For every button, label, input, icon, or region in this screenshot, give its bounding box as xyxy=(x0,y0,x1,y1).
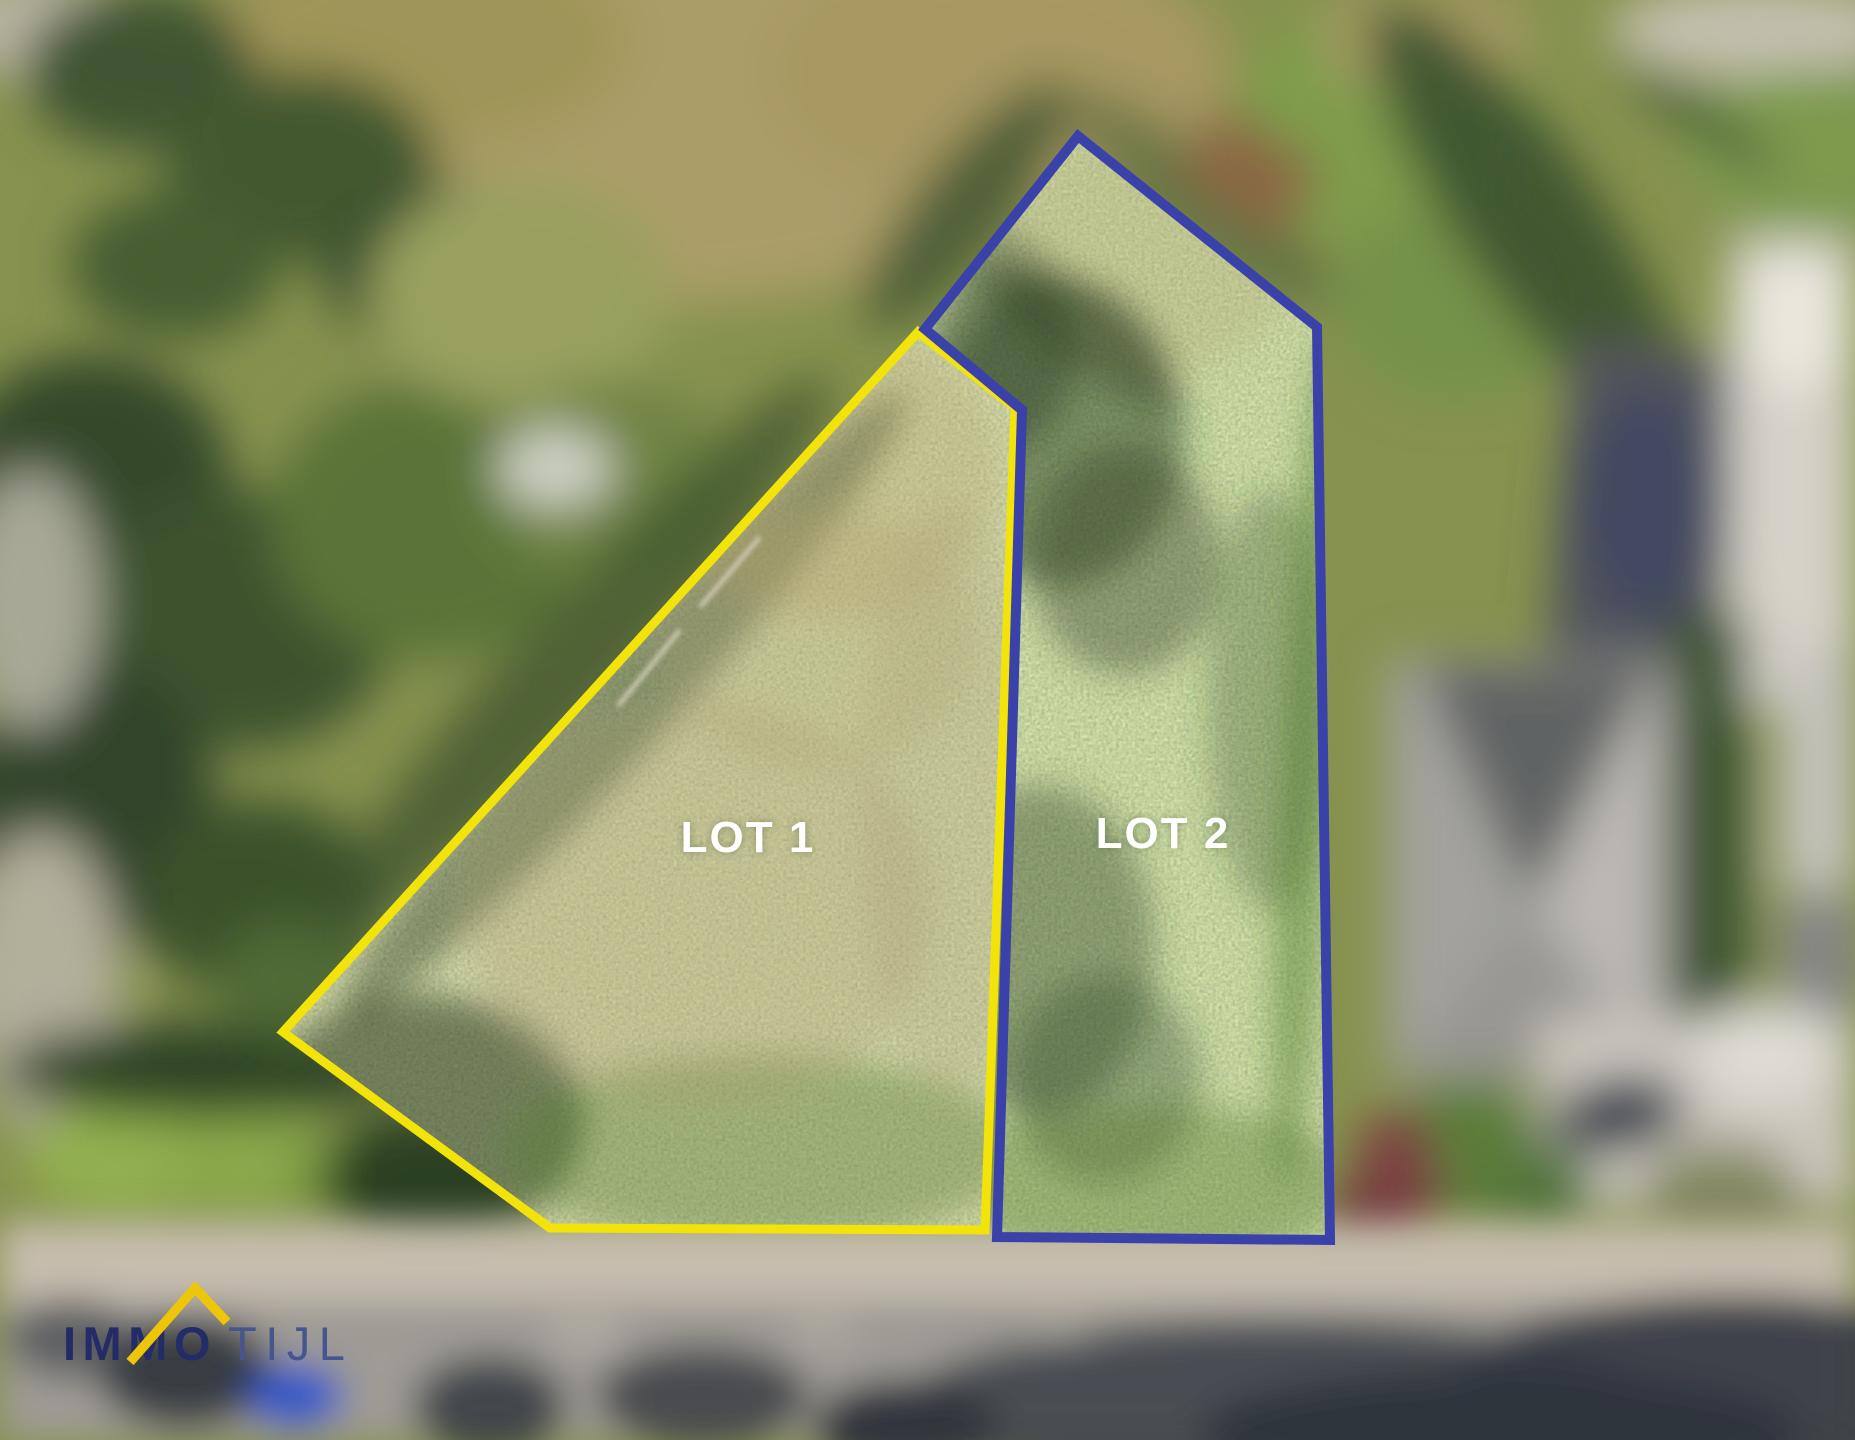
immotijl-logo-svg: IMMO TIJL xyxy=(58,1282,358,1374)
greenhouse-blob xyxy=(497,428,613,508)
lot1-label: LOT 1 xyxy=(681,813,816,863)
logo-text-light: TIJL xyxy=(228,1317,353,1370)
immotijl-logo: IMMO TIJL xyxy=(58,1282,358,1374)
hip-roof-house xyxy=(1388,658,1670,1078)
aerial-photo: LOT 1 LOT 2 IMMO TIJL xyxy=(0,0,1855,1440)
lot2-label: LOT 2 xyxy=(1096,809,1231,859)
aerial-photo-scene xyxy=(0,0,1855,1440)
